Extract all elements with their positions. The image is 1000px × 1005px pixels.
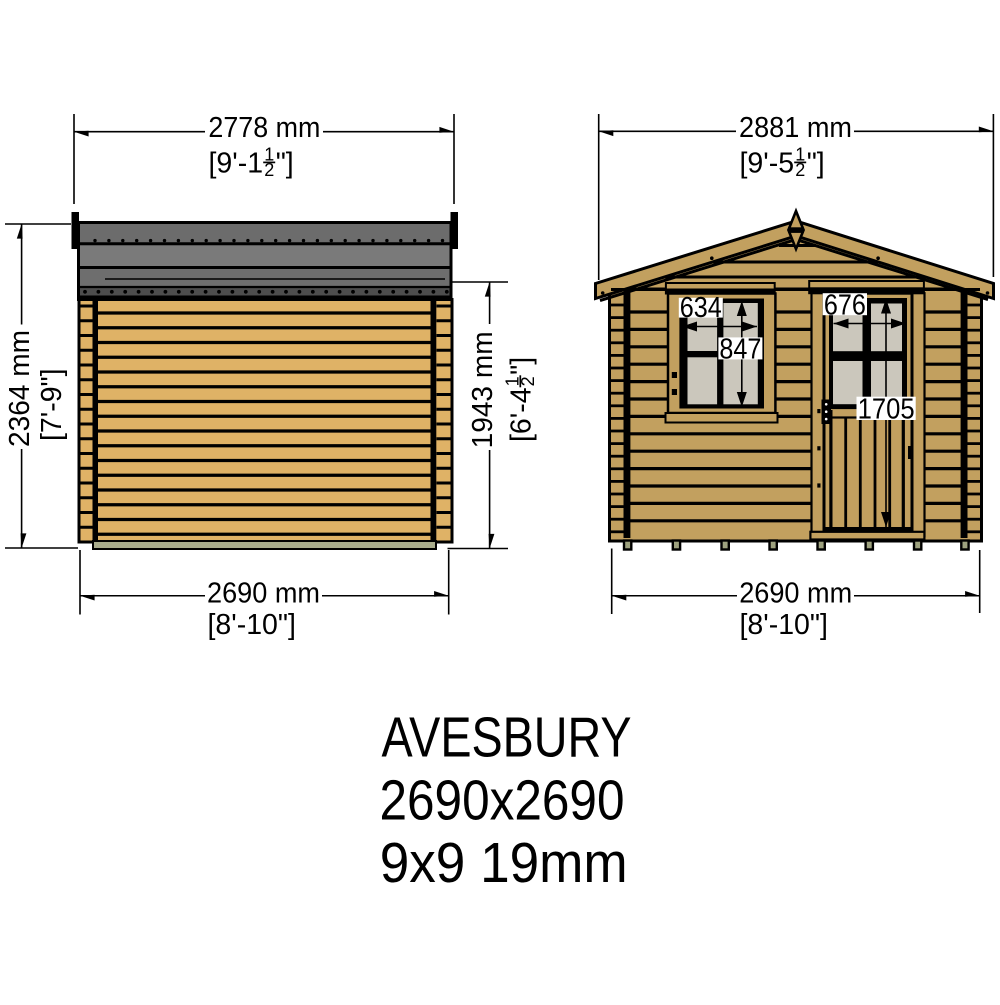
svg-text:2690x2690: 2690x2690 [380,769,625,833]
svg-text:[9'-5: [9'-5 [740,148,795,180]
svg-text:[6'-4: [6'-4 [505,387,537,442]
svg-text:634: 634 [680,292,722,324]
svg-text:"]: "] [505,357,537,375]
svg-text:[8'-10"]: [8'-10"] [740,609,828,641]
svg-text:2881 mm: 2881 mm [739,112,852,144]
svg-text:"]: "] [276,148,294,180]
svg-text:[7'-9"]: [7'-9"] [36,368,68,441]
svg-text:2778 mm: 2778 mm [208,112,320,144]
svg-text:AVESBURY: AVESBURY [382,706,632,770]
svg-text:676: 676 [824,289,866,321]
svg-text:[9'-1: [9'-1 [209,148,264,180]
svg-text:1943 mm: 1943 mm [467,331,499,448]
svg-text:[8'-10"]: [8'-10"] [208,609,296,641]
svg-text:2: 2 [518,376,538,386]
svg-text:"]: "] [807,148,825,180]
svg-text:2: 2 [264,160,274,180]
svg-text:847: 847 [719,334,761,366]
svg-text:1705: 1705 [858,393,915,425]
svg-text:2: 2 [795,160,805,180]
svg-text:2364 mm: 2364 mm [4,330,36,447]
svg-text:2690 mm: 2690 mm [739,577,852,609]
svg-text:2690 mm: 2690 mm [207,577,320,609]
svg-text:9x9 19mm: 9x9 19mm [380,831,628,895]
